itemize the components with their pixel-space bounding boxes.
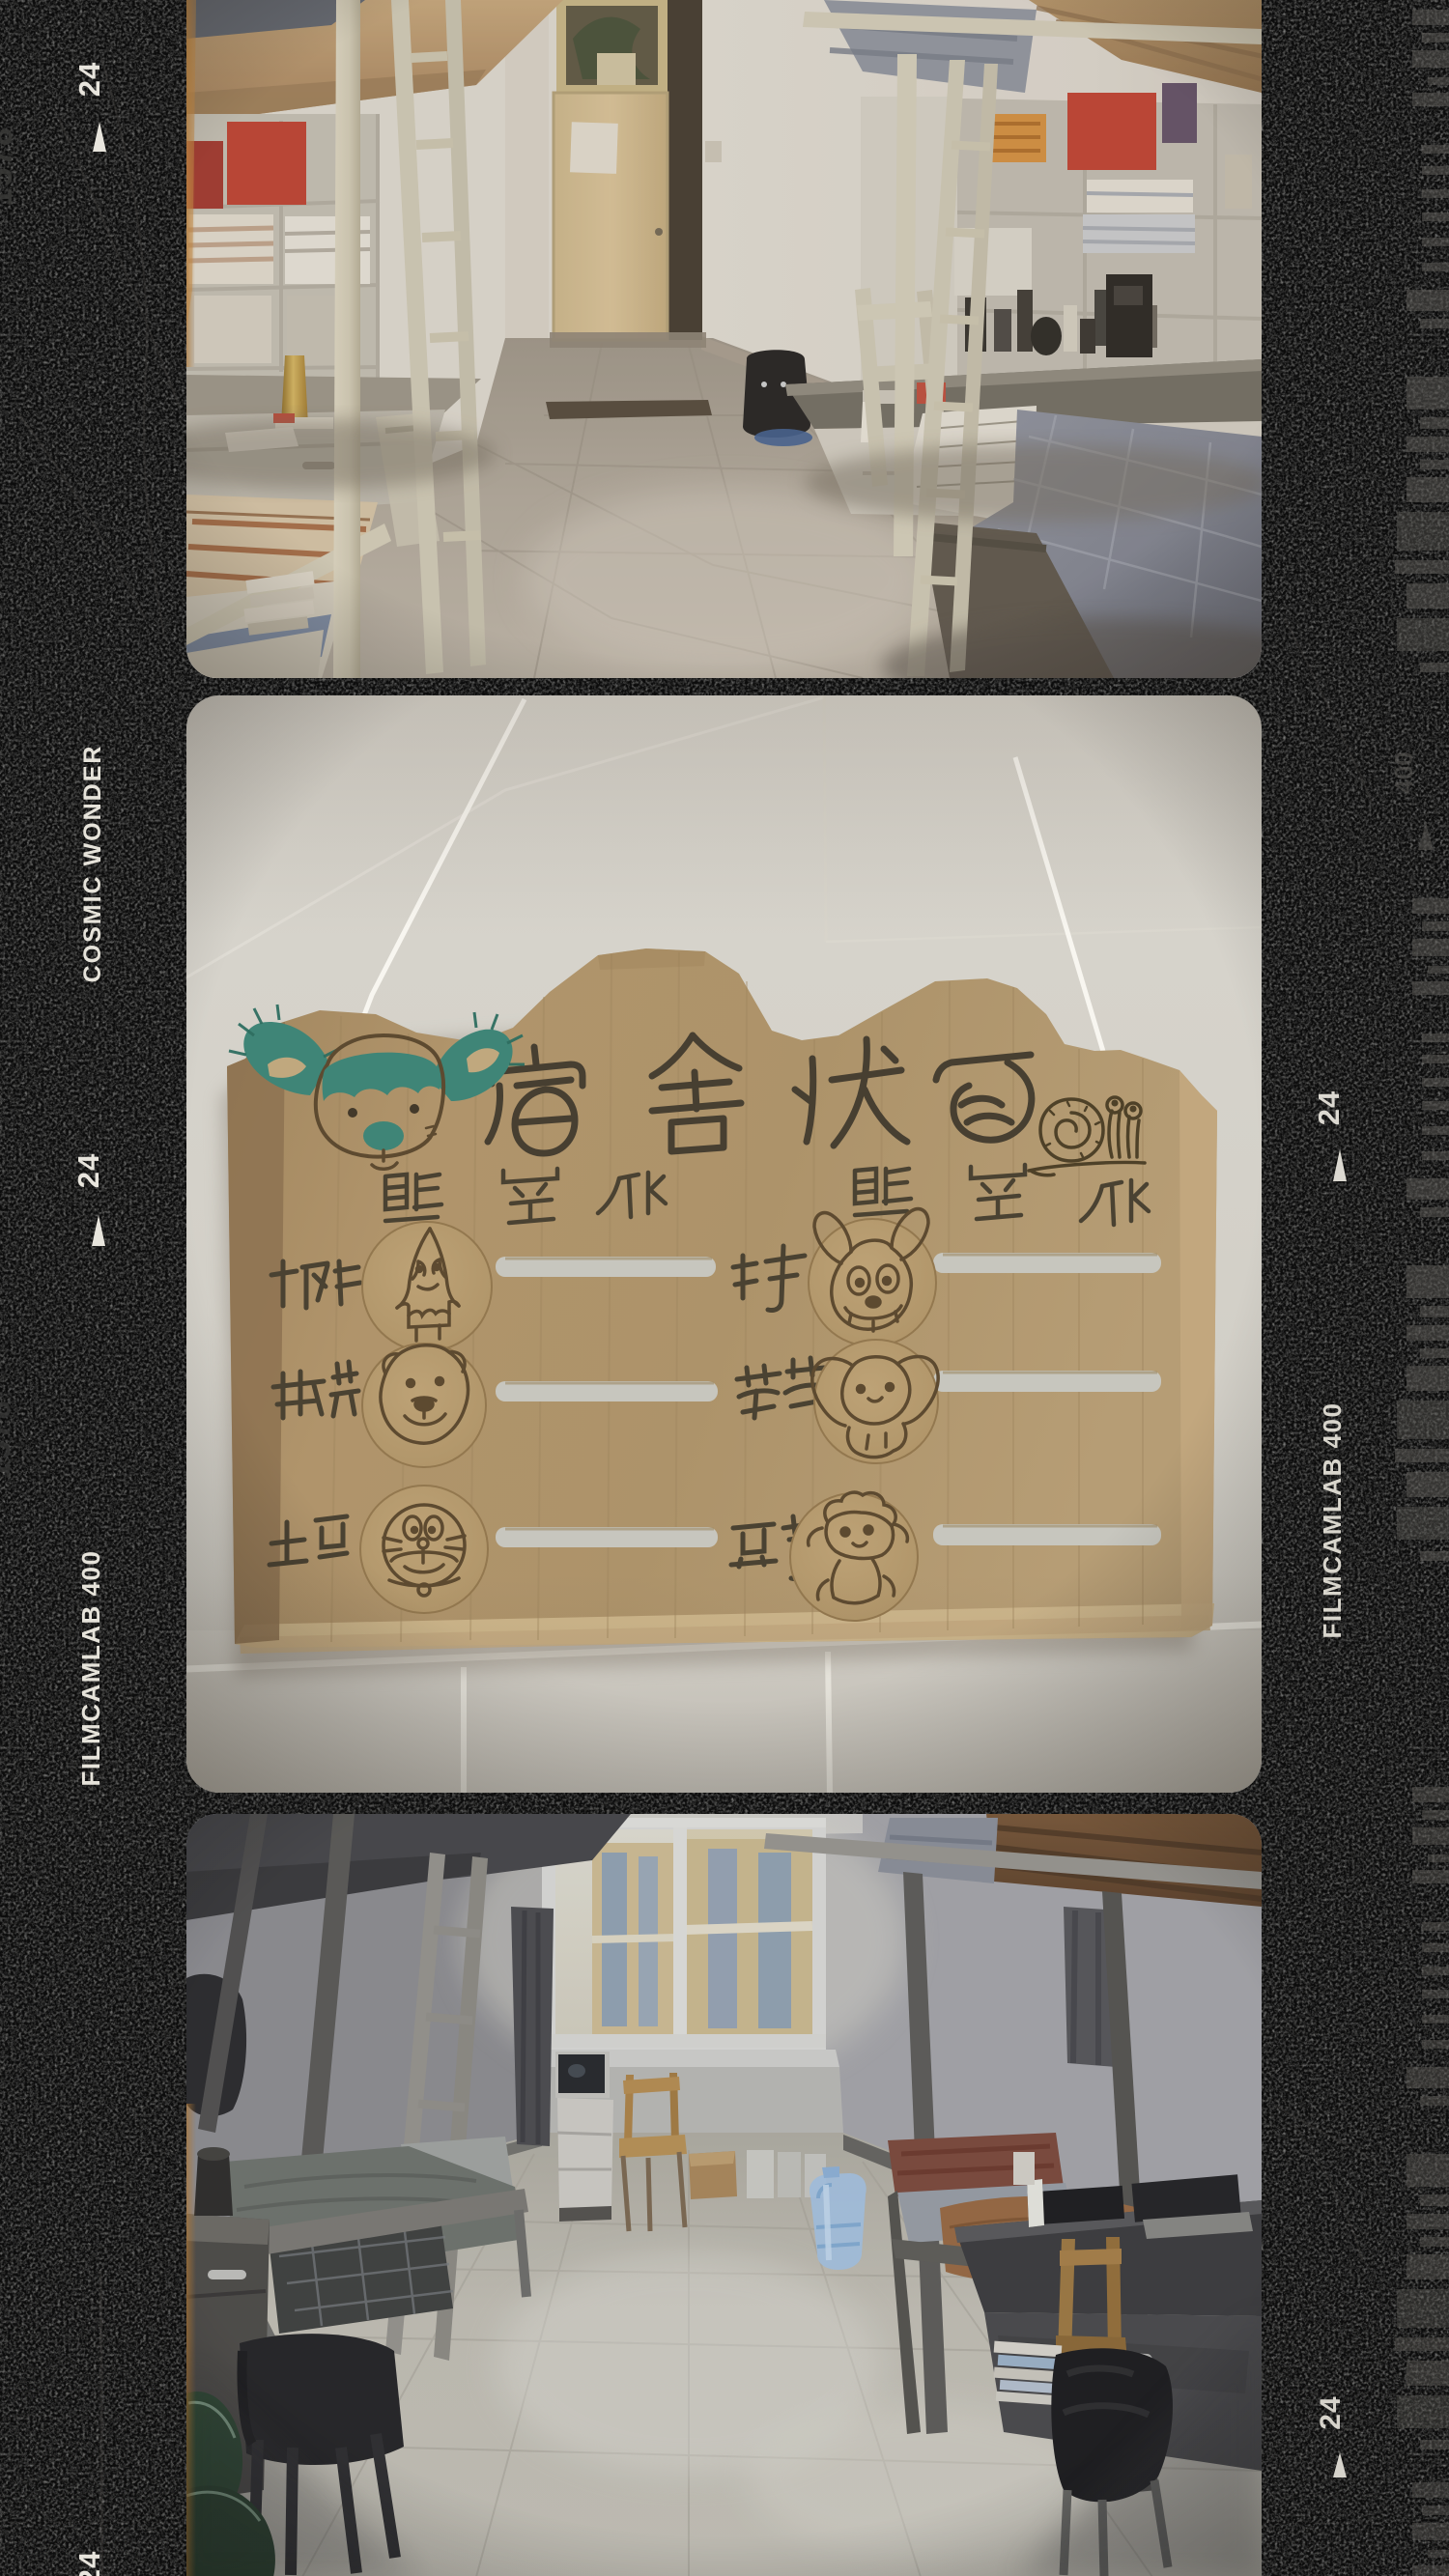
svg-text:FILMCAMLAB 400: FILMCAMLAB 400 [76,1550,105,1787]
svg-text:24: 24 [72,62,106,97]
svg-text:1578: 1578 [0,1399,17,1480]
svg-text:400: 400 [1389,751,1418,793]
svg-text:COSMIC WONDER: COSMIC WONDER [79,745,106,983]
svg-text:24: 24 [71,1153,105,1188]
svg-text:FILMCAMLAB 400: FILMCAMLAB 400 [1318,1402,1347,1639]
svg-text:24: 24 [72,2551,106,2576]
svg-text:1578: 1578 [0,126,19,207]
svg-text:24: 24 [1312,1090,1346,1125]
svg-text:24: 24 [1315,2395,1347,2429]
